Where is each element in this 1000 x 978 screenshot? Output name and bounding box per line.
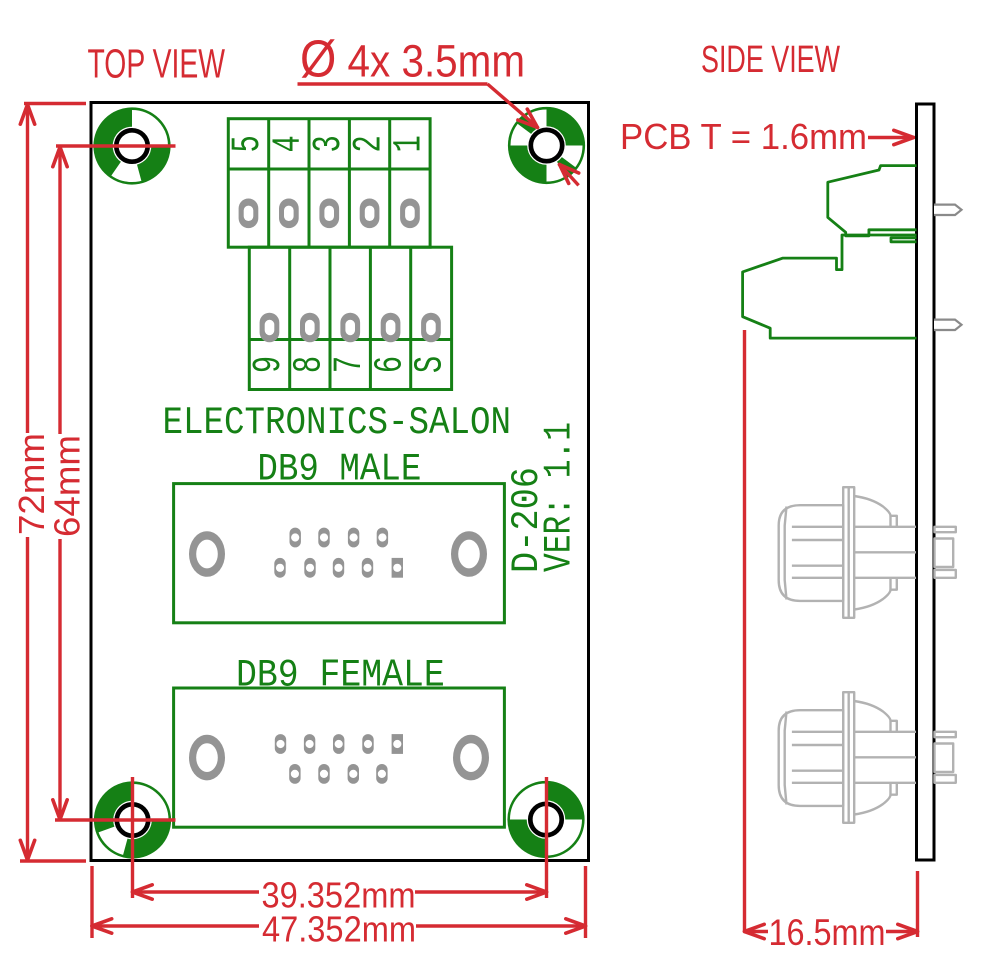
svg-text:PCB T = 1.6mm: PCB T = 1.6mm (620, 116, 867, 157)
svg-text:S: S (409, 356, 454, 373)
svg-text:TOP VIEW: TOP VIEW (88, 41, 226, 87)
svg-text:47.352mm: 47.352mm (262, 909, 416, 950)
svg-text:DB9 FEMALE: DB9 FEMALE (236, 654, 445, 698)
svg-text:5: 5 (226, 135, 271, 152)
svg-text:Ø 4x 3.5mm: Ø 4x 3.5mm (300, 31, 525, 89)
svg-text:2: 2 (347, 135, 392, 152)
svg-text:7: 7 (328, 356, 373, 373)
svg-text:4: 4 (266, 135, 311, 152)
svg-text:9: 9 (247, 356, 292, 373)
svg-text:6: 6 (368, 356, 413, 373)
svg-text:8: 8 (287, 356, 332, 373)
svg-text:1: 1 (388, 135, 433, 152)
svg-text:64mm: 64mm (47, 435, 88, 537)
svg-text:SIDE VIEW: SIDE VIEW (701, 39, 840, 81)
svg-text:VER: 1.1: VER: 1.1 (538, 422, 582, 572)
svg-text:3: 3 (307, 135, 352, 152)
svg-text:16.5mm: 16.5mm (769, 912, 886, 953)
svg-text:ELECTRONICS-SALON: ELECTRONICS-SALON (163, 401, 512, 445)
